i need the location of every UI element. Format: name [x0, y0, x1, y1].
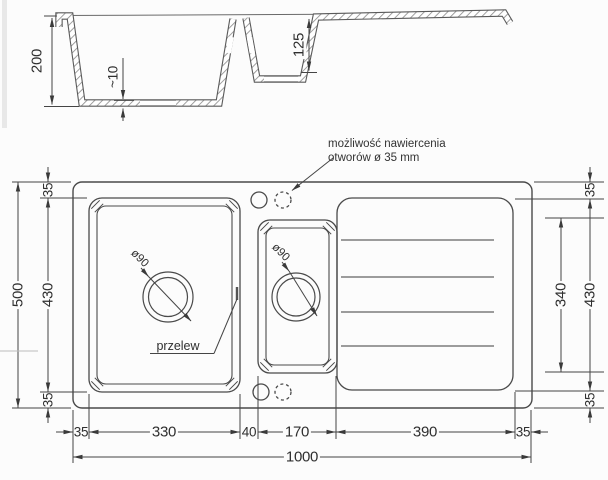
drill-note-leader [292, 158, 333, 191]
dim-label-left-top-margin: 35 [41, 182, 55, 198]
sink-technical-drawing: 200 ~10 125 500 35 430 35 35 430 35 340 … [0, 0, 608, 480]
drill-hole-top-dashed [275, 192, 291, 208]
drainboard-outline [337, 198, 513, 390]
dim-label-bottom-margin-left: 35 [73, 425, 89, 439]
small-bowl-drainboard-section-hatch [246, 13, 510, 79]
sink-outline [73, 182, 532, 408]
small-drain-hole [277, 278, 315, 316]
tap-holes [251, 192, 291, 400]
dim-label-main-depth: 200 [30, 47, 45, 75]
dim-label-main-bowl-width: 330 [150, 425, 178, 440]
drill-note-line2: otworów ø 35 mm [328, 152, 446, 166]
dim-label-bottom-thickness: ~10 [106, 65, 120, 89]
main-bowl-rim [89, 198, 240, 392]
dim-label-drainer-width: 390 [411, 425, 439, 440]
small-bowl-rim [258, 220, 337, 373]
plan-dimensions [12, 167, 604, 463]
drainboard-grooves [341, 240, 494, 346]
small-bowl [258, 220, 337, 373]
drill-hole-bottom-dashed [275, 384, 291, 400]
dim-label-total-height: 500 [11, 281, 26, 309]
small-drain-recess [272, 273, 320, 321]
overflow-leader [214, 299, 237, 354]
main-drain-leader-b [149, 277, 192, 322]
drainboard [337, 198, 513, 390]
small-drain-leader-b [289, 271, 317, 316]
dim-label-divider-width: 40 [241, 425, 257, 439]
drill-note: możliwość nawiercenia otworów ø 35 mm [328, 138, 446, 165]
small-bowl-drainboard-section-edge [246, 13, 510, 79]
callout-leaders [141, 158, 333, 354]
dim-label-small-bowl-width: 170 [283, 425, 311, 440]
dim-label-total-width: 1000 [284, 450, 320, 465]
dim-label-drainer-height: 340 [554, 281, 569, 309]
plan-view [0, 158, 604, 463]
main-bowl-section-hatch [59, 16, 233, 103]
main-bowl-bottom-edge [97, 206, 232, 384]
dim-label-left-bottom-margin: 35 [41, 392, 55, 408]
main-bowl [89, 198, 240, 392]
main-bowl-section-edge [59, 16, 233, 103]
dim-label-left-bowl-height: 430 [41, 281, 56, 309]
dim-label-small-depth: 125 [292, 31, 307, 59]
dim-label-right-bottom-margin: 35 [583, 392, 597, 408]
dim-label-bottom-margin-right: 35 [515, 425, 531, 439]
overflow-label: przelew [156, 340, 199, 353]
drill-note-line1: możliwość nawiercenia [328, 138, 446, 152]
section-profile [59, 13, 510, 106]
main-bowl-corner-chamfers [91, 200, 237, 389]
faucet-hole-top [251, 192, 267, 208]
dim-label-right-top-margin: 35 [583, 182, 597, 198]
faucet-hole-bottom [253, 384, 269, 400]
dim-label-right-bowl-height: 430 [583, 281, 598, 309]
drawing-geometry [0, 0, 608, 480]
